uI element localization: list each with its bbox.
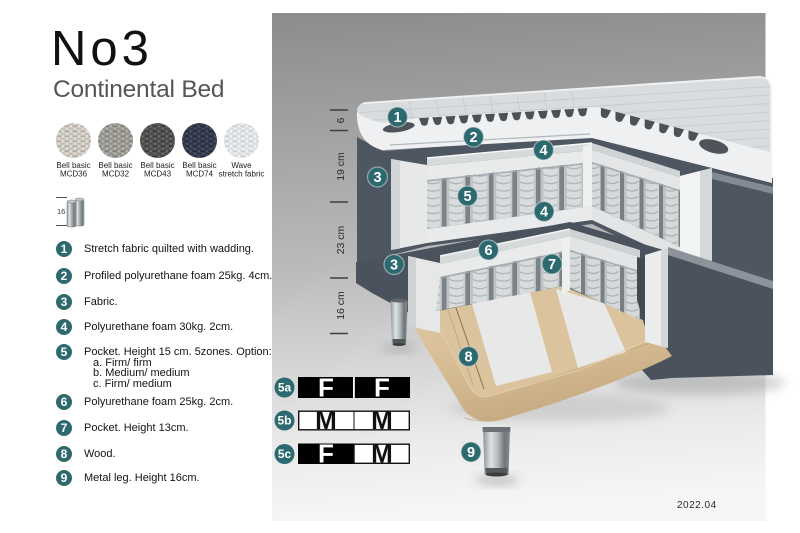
svg-text:9: 9 — [467, 445, 475, 461]
svg-text:F: F — [318, 373, 334, 403]
svg-text:16 cm: 16 cm — [335, 291, 347, 320]
svg-text:M: M — [315, 405, 337, 435]
svg-text:7: 7 — [548, 257, 556, 273]
svg-text:23 cm: 23 cm — [335, 225, 347, 254]
svg-text:5: 5 — [463, 189, 471, 205]
svg-text:2: 2 — [469, 130, 477, 146]
svg-text:5a: 5a — [278, 381, 292, 395]
svg-text:3: 3 — [373, 170, 381, 186]
svg-text:8: 8 — [464, 350, 472, 366]
svg-text:4: 4 — [540, 205, 548, 221]
svg-text:M: M — [371, 439, 393, 469]
svg-text:5b: 5b — [277, 414, 291, 428]
svg-text:2022.04: 2022.04 — [677, 500, 717, 511]
svg-text:F: F — [318, 439, 334, 469]
svg-text:3: 3 — [390, 258, 398, 274]
svg-text:6: 6 — [335, 117, 347, 123]
svg-text:19 cm: 19 cm — [335, 152, 347, 181]
svg-text:5c: 5c — [278, 447, 292, 461]
svg-text:1: 1 — [393, 110, 401, 126]
svg-text:F: F — [374, 373, 390, 403]
svg-text:M: M — [371, 405, 393, 435]
svg-text:4: 4 — [539, 143, 547, 159]
svg-text:6: 6 — [484, 243, 492, 259]
